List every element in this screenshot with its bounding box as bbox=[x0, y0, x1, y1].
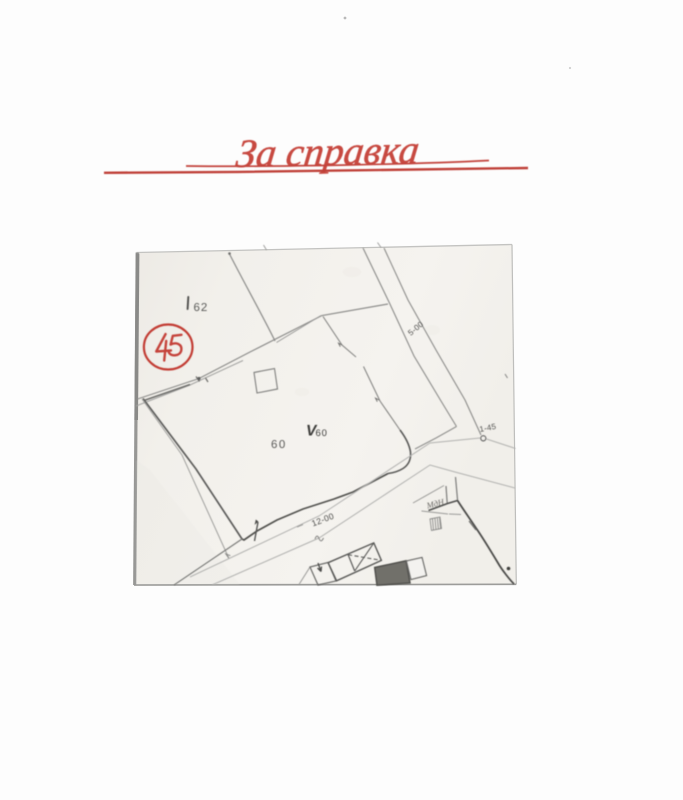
svg-text:62: 62 bbox=[194, 302, 209, 314]
svg-text:60: 60 bbox=[316, 428, 328, 439]
svg-text:60: 60 bbox=[271, 439, 287, 451]
